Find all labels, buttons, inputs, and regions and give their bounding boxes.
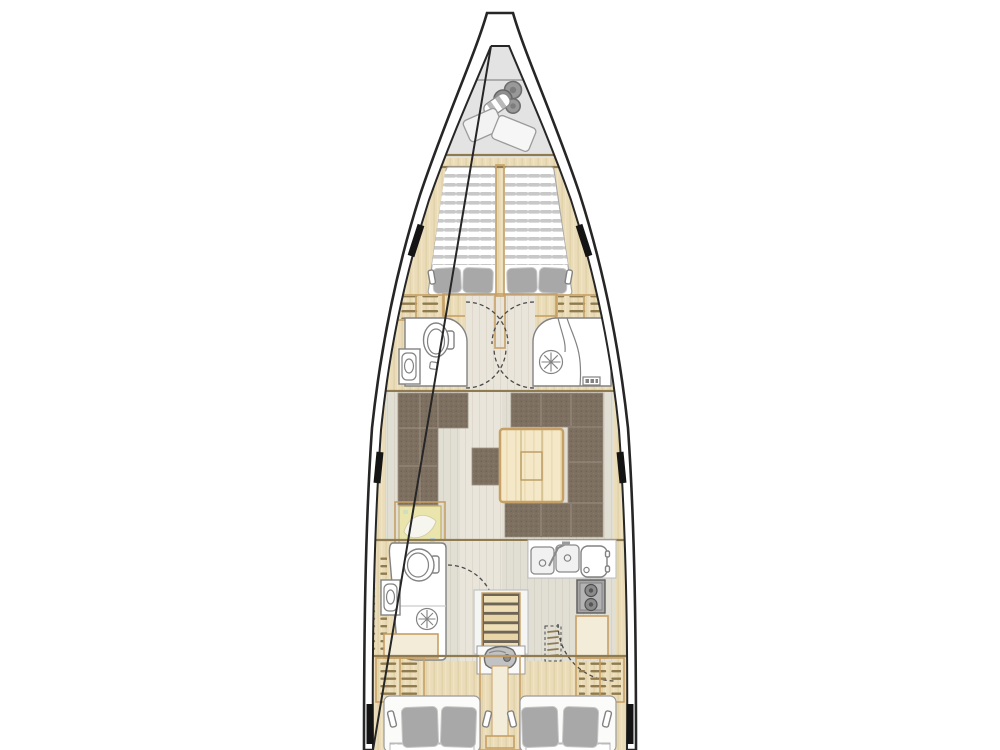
interior	[360, 40, 640, 750]
shower-drain-icon	[417, 609, 438, 630]
pillow	[432, 267, 461, 293]
pillow	[463, 267, 494, 293]
pillow	[562, 706, 598, 747]
aft-cabins	[372, 656, 628, 750]
corridor-floor	[465, 296, 535, 392]
pillow	[507, 267, 538, 293]
mid-corridor	[465, 296, 535, 392]
stove-icon	[577, 580, 605, 613]
pillow	[521, 706, 558, 747]
sink-icon	[399, 349, 420, 384]
shower-drain-icon	[540, 351, 563, 374]
yacht-floorplan	[0, 0, 1000, 750]
stairs-icon	[482, 593, 520, 651]
pillow	[538, 267, 567, 293]
pillow	[401, 706, 438, 747]
starboard-aft-cabin	[507, 696, 616, 750]
starboard-shower-head	[533, 318, 611, 386]
center-engine-strip	[492, 666, 508, 736]
port-aft-cabin	[384, 696, 492, 750]
galley-cabinet	[576, 616, 608, 658]
stool	[472, 448, 499, 485]
floorplan-canvas	[0, 0, 1000, 750]
pillow	[440, 706, 476, 747]
hull-window	[377, 452, 380, 483]
fridge-icon	[581, 546, 610, 577]
hull-window	[620, 452, 623, 483]
dinette-table	[500, 429, 563, 502]
port-head	[399, 318, 467, 386]
